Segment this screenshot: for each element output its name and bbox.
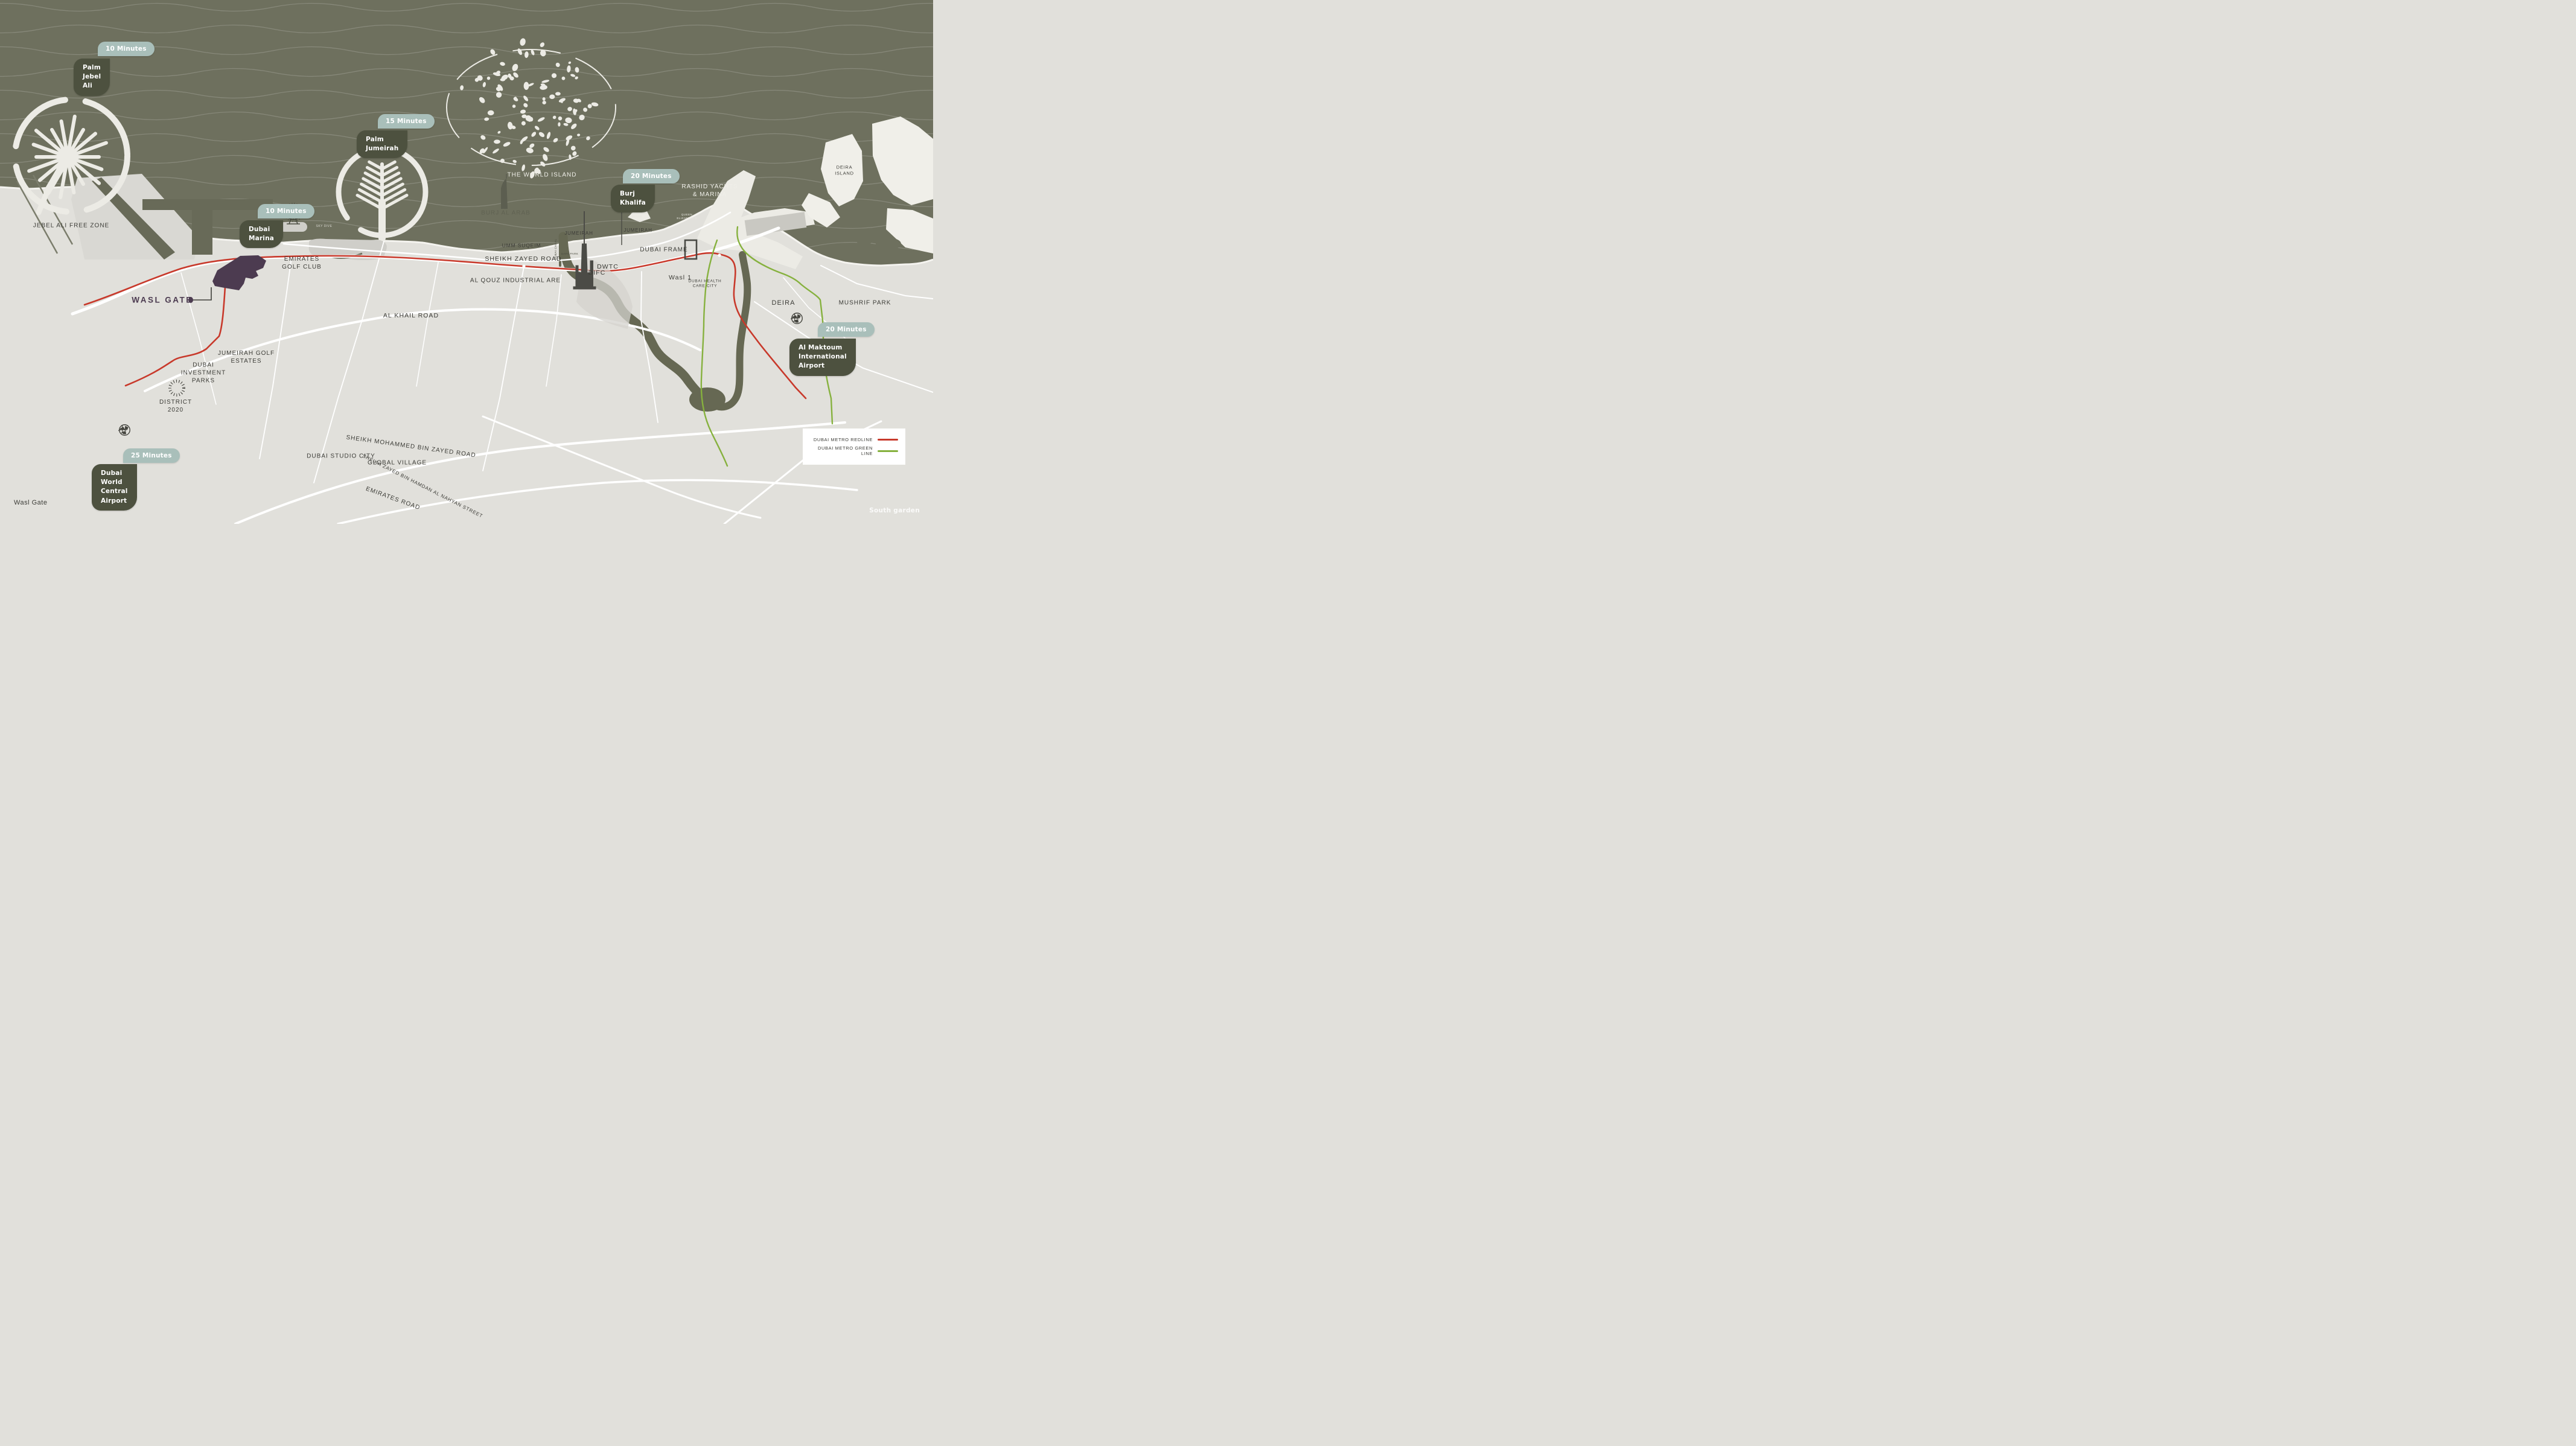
dubai-location-map: JEBEL ALI FREE ZONEEMIRATES GOLF CLUBUMM…: [0, 0, 933, 524]
bottom-left-watermark: Wasl Gate: [14, 499, 47, 506]
metro-station-dot: [522, 264, 525, 267]
metro-station-dot: [718, 253, 721, 256]
legend-label: DUBAI METRO GREEN LINE: [809, 445, 873, 456]
map-canvas: [0, 0, 933, 524]
legend-row-dubai-metro-green-line: DUBAI METRO GREEN LINE: [809, 445, 898, 456]
wasl-gate-title: WASL GATE: [132, 296, 193, 305]
metro-legend: DUBAI METRO REDLINEDUBAI METRO GREEN LIN…: [803, 428, 905, 465]
legend-line-swatch: [878, 439, 898, 441]
legend-row-dubai-metro-redline: DUBAI METRO REDLINE: [809, 437, 898, 442]
legend-label: DUBAI METRO REDLINE: [814, 437, 873, 442]
legend-line-swatch: [878, 450, 898, 452]
bottom-right-watermark: South garden: [869, 507, 920, 514]
